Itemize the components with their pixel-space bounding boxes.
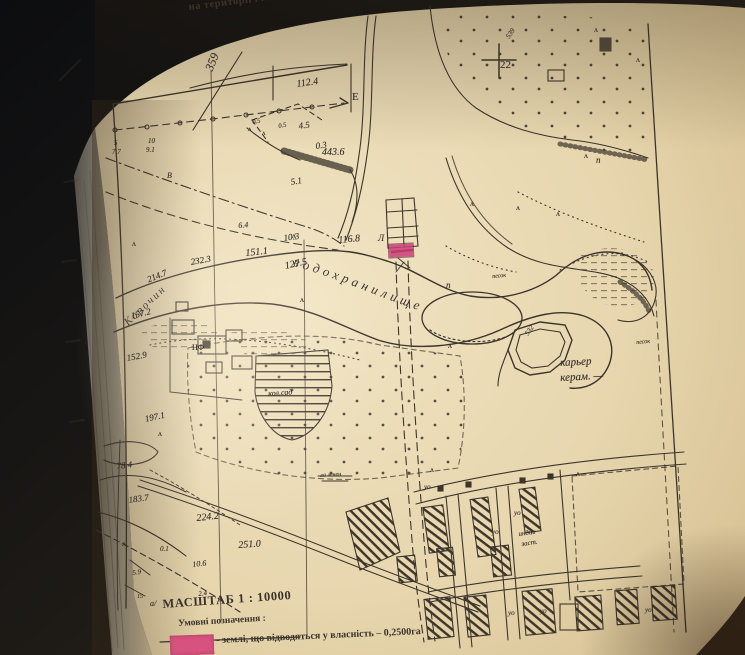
parcel-highlight xyxy=(389,243,414,257)
legend-swatch xyxy=(170,634,215,655)
book-photo: водохранилище Корочин на території . . .… xyxy=(0,0,745,655)
map-artwork: водохранилище Корочин xyxy=(0,0,745,655)
